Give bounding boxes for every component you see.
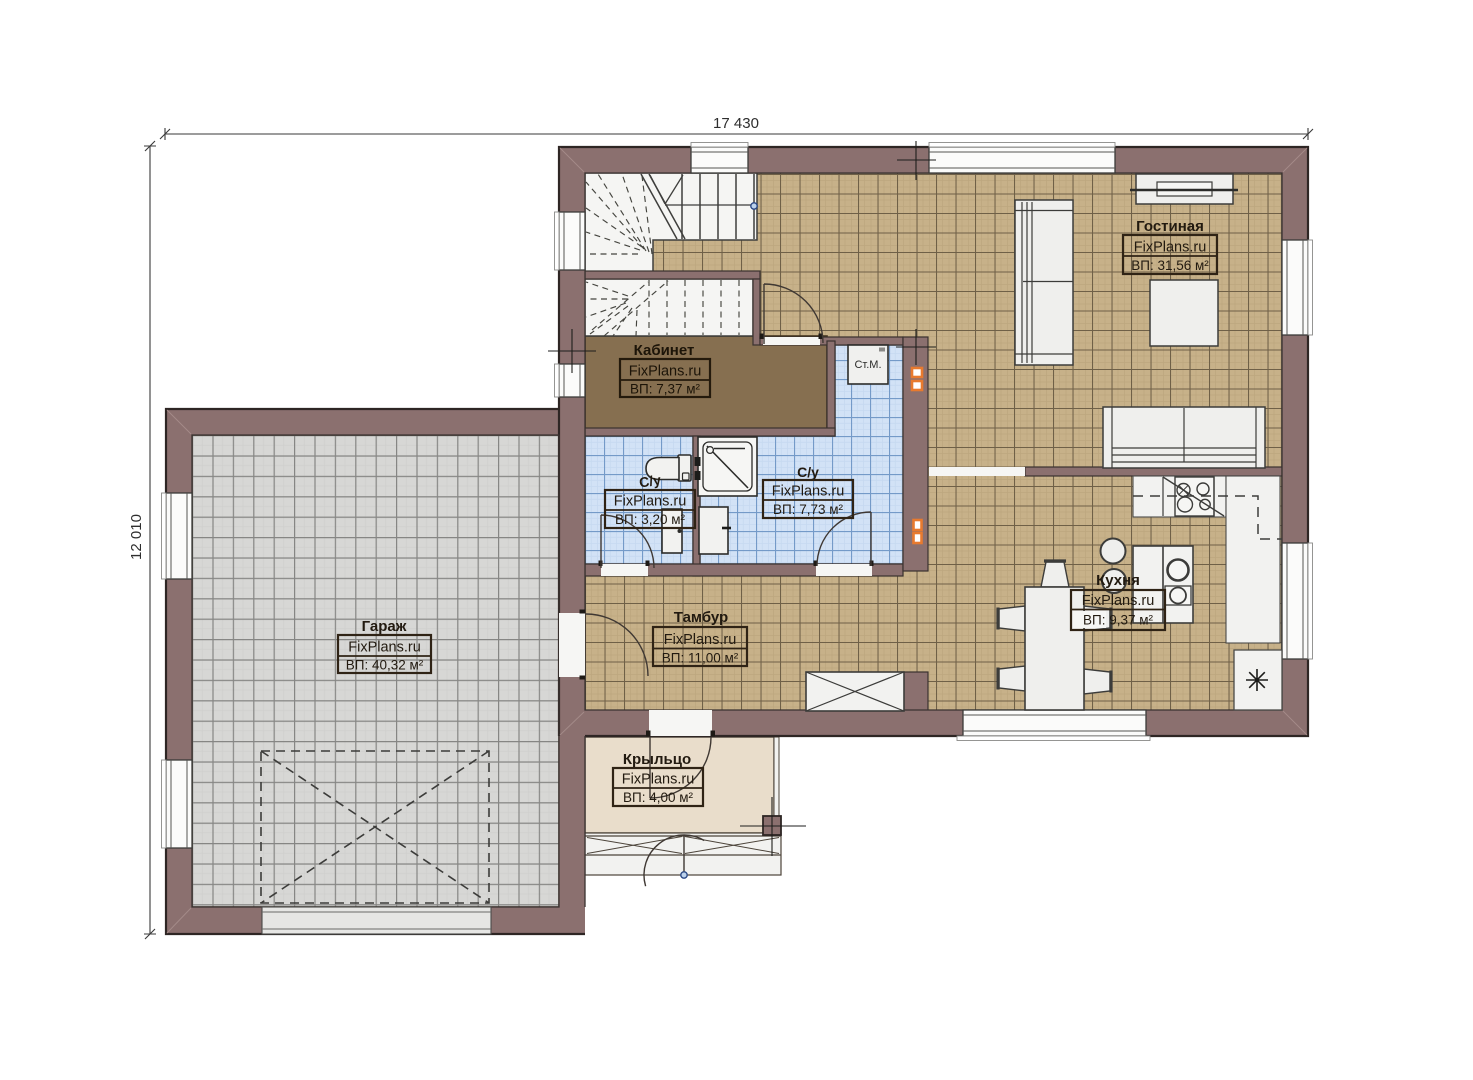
- svg-text:ВП: 9,37 м²: ВП: 9,37 м²: [1083, 613, 1154, 628]
- svg-text:Кабинет: Кабинет: [634, 342, 695, 359]
- svg-text:Гостиная: Гостиная: [1136, 218, 1204, 235]
- svg-text:FixPlans.ru: FixPlans.ru: [1134, 240, 1207, 256]
- svg-text:ВП: 4,00 м²: ВП: 4,00 м²: [623, 790, 694, 805]
- svg-text:ВП: 3,20 м²: ВП: 3,20 м²: [615, 512, 686, 527]
- svg-text:Тамбур: Тамбур: [674, 609, 728, 626]
- svg-text:FixPlans.ru: FixPlans.ru: [348, 640, 421, 656]
- svg-text:ВП: 7,73 м²: ВП: 7,73 м²: [773, 502, 844, 517]
- svg-text:FixPlans.ru: FixPlans.ru: [622, 772, 695, 788]
- svg-text:Гараж: Гараж: [362, 618, 407, 635]
- svg-text:FixPlans.ru: FixPlans.ru: [772, 484, 845, 500]
- svg-text:FixPlans.ru: FixPlans.ru: [614, 494, 687, 510]
- svg-text:Кухня: Кухня: [1096, 572, 1140, 589]
- svg-text:FixPlans.ru: FixPlans.ru: [629, 364, 702, 380]
- svg-text:Ст.М.: Ст.М.: [854, 359, 881, 371]
- svg-text:С/у: С/у: [638, 472, 662, 491]
- svg-text:ВП: 40,32 м²: ВП: 40,32 м²: [346, 658, 424, 673]
- svg-text:12 010: 12 010: [128, 514, 145, 560]
- svg-text:FixPlans.ru: FixPlans.ru: [664, 632, 737, 648]
- svg-text:17 430: 17 430: [713, 115, 759, 132]
- svg-text:ВП: 11,00 м²: ВП: 11,00 м²: [662, 651, 739, 666]
- svg-text:FixPlans.ru: FixPlans.ru: [1082, 593, 1155, 609]
- svg-text:ВП: 7,37 м²: ВП: 7,37 м²: [630, 382, 701, 397]
- svg-text:ВП: 31,56 м²: ВП: 31,56 м²: [1131, 258, 1209, 273]
- svg-text:Крыльцо: Крыльцо: [623, 751, 691, 768]
- svg-text:С/у: С/у: [797, 464, 819, 480]
